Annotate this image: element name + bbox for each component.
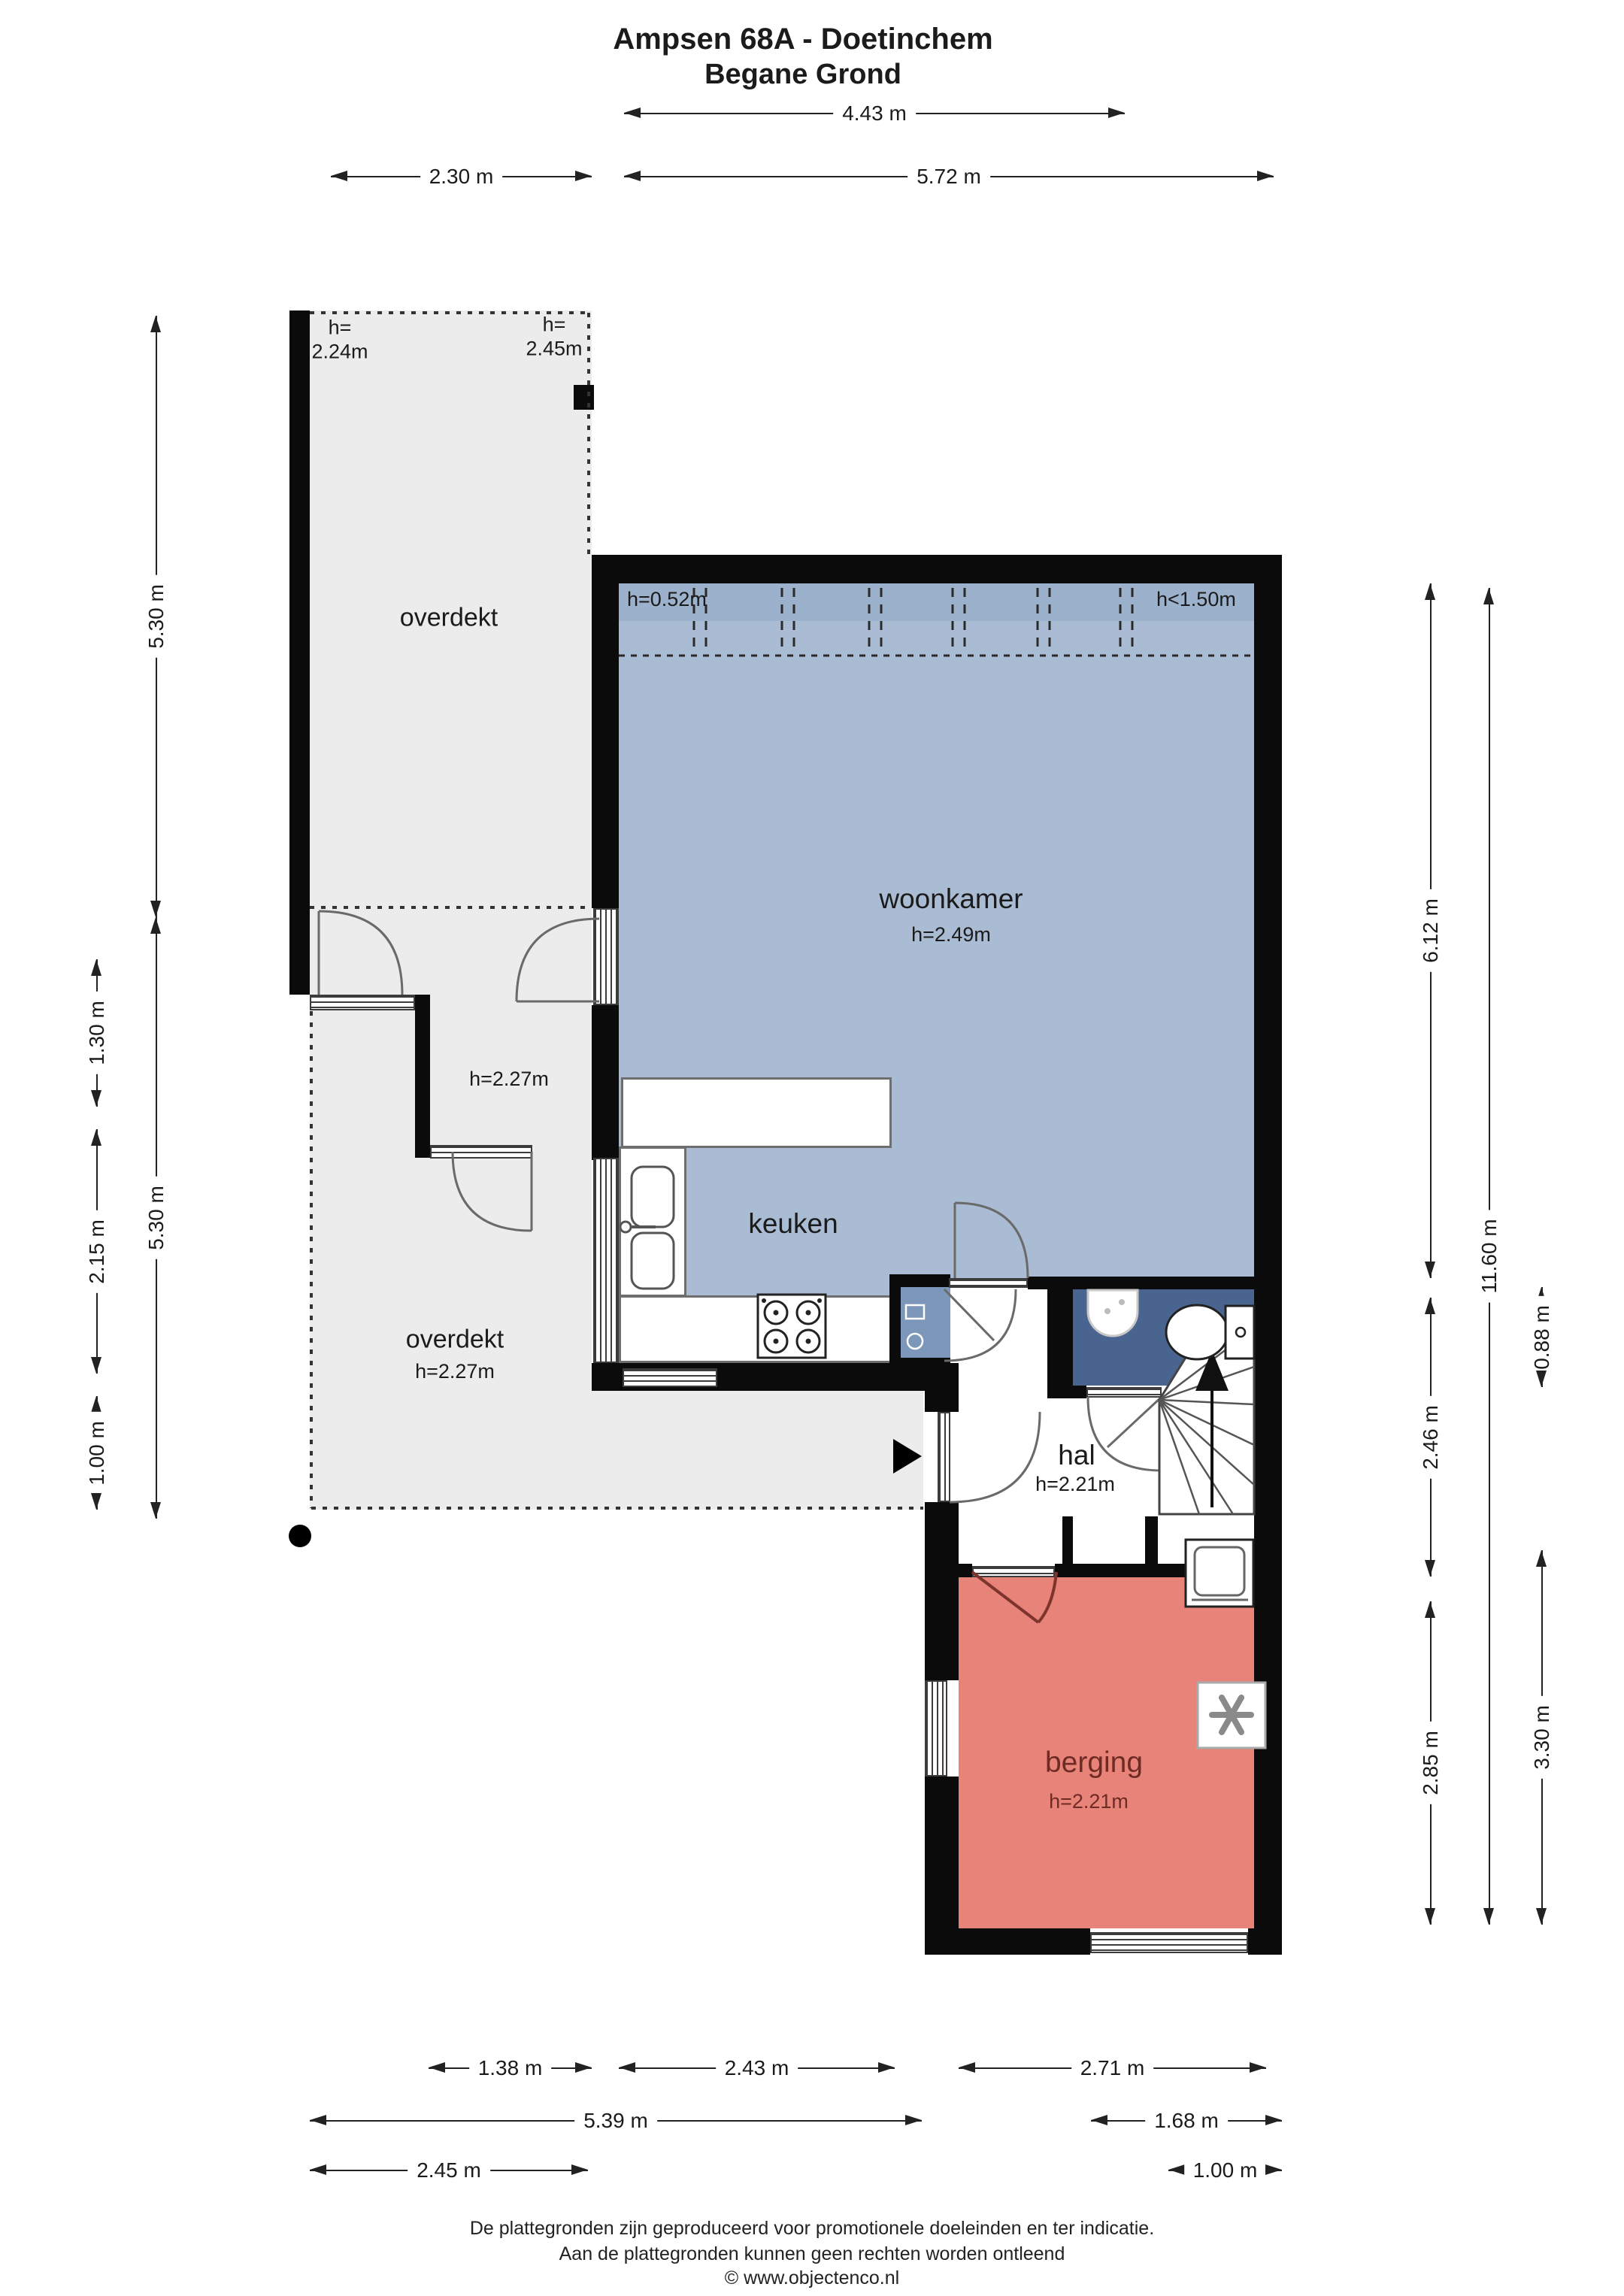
wall — [1248, 1928, 1282, 1955]
dimension: 2.71 m — [959, 2067, 1266, 2069]
room-label-keuken: keuken — [748, 1208, 838, 1240]
kitchen-bottom-counter — [619, 1295, 892, 1363]
room-label-overdekt-top: overdekt — [400, 604, 498, 633]
dimension: 1.30 m — [96, 959, 98, 1107]
dimension: 2.45 m — [310, 2170, 588, 2171]
height-label-woonkamer: h=2.49m — [911, 922, 991, 947]
wall — [925, 1566, 959, 1680]
wall — [415, 995, 430, 1158]
dimension: 1.00 m — [96, 1396, 98, 1510]
dimension: 4.43 m — [624, 113, 1125, 114]
wall — [1047, 1277, 1282, 1289]
footer-copyright: © www.objectenco.nl — [0, 2267, 1624, 2289]
dimension: 3.30 m — [1541, 1550, 1543, 1925]
height-label-overdekt-right: h= 2.45m — [526, 313, 582, 362]
wall — [1028, 1277, 1047, 1289]
dimension: 2.30 m — [331, 176, 592, 177]
wall — [925, 1928, 1090, 1955]
wall — [592, 555, 1282, 583]
overdekt-bottom-area — [592, 1391, 923, 1510]
window — [310, 995, 415, 1010]
dimension: 0.88 m — [1541, 1287, 1543, 1387]
dimension: 5.30 m — [156, 917, 157, 1519]
kitchen-sink-cabinet — [619, 1146, 686, 1297]
dimension: 1.68 m — [1091, 2120, 1282, 2122]
threshold — [972, 1566, 1055, 1577]
dimension: 5.72 m — [624, 176, 1274, 177]
room-label-overdekt-bottom: overdekt — [406, 1325, 504, 1355]
threshold — [1086, 1387, 1162, 1398]
wall — [889, 1358, 950, 1371]
wall — [925, 1391, 959, 1412]
kitchen-island-counter — [621, 1077, 892, 1148]
wall — [574, 385, 594, 410]
height-label-berging: h=2.21m — [1049, 1789, 1129, 1813]
front-door — [938, 1412, 950, 1502]
dimension: 6.12 m — [1430, 583, 1432, 1278]
wall — [889, 1274, 901, 1371]
dimension: 2.43 m — [619, 2067, 895, 2069]
wall — [289, 310, 310, 995]
wall — [925, 1502, 959, 1566]
window — [593, 908, 619, 1005]
room-label-hal: hal — [1058, 1440, 1095, 1471]
dimension: 5.30 m — [156, 316, 157, 917]
wall — [1047, 1277, 1073, 1398]
dimension: 1.00 m — [1168, 2170, 1282, 2171]
wall — [959, 1564, 972, 1577]
wall — [592, 555, 619, 908]
page-title: Ampsen 68A - Doetinchem — [0, 23, 1606, 56]
footer-disclaimer-2: Aan de plattegronden kunnen geen rechten… — [0, 2243, 1624, 2265]
dimension: 11.60 m — [1489, 588, 1490, 1925]
corner-dot-marker — [289, 1525, 311, 1547]
wall — [1145, 1516, 1158, 1569]
wall — [1254, 555, 1282, 1955]
room-label-woonkamer: woonkamer — [879, 883, 1023, 915]
floorplan: Ampsen 68A - Doetinchem Begane Grond — [0, 0, 1624, 2296]
page-subtitle: Begane Grond — [0, 59, 1606, 91]
footer-disclaimer-1: De plattegronden zijn geproduceerd voor … — [0, 2218, 1624, 2240]
meterkast-area — [901, 1287, 950, 1358]
toilet-area — [1073, 1289, 1254, 1386]
dimension: 5.39 m — [310, 2120, 922, 2122]
window — [925, 1680, 947, 1777]
dimension: 2.85 m — [1430, 1601, 1432, 1925]
roof-height-left: h=0.52m — [627, 588, 707, 611]
threshold — [949, 1278, 1028, 1288]
roof-height-right: h<1.50m — [1156, 588, 1236, 611]
height-label-hal: h=2.21m — [1035, 1472, 1115, 1496]
dimension: 2.46 m — [1430, 1298, 1432, 1577]
wall — [592, 1005, 619, 1160]
height-label-overdekt-bottom: h=2.27m — [415, 1359, 495, 1383]
window — [623, 1368, 717, 1387]
window — [593, 1158, 619, 1363]
window — [430, 1145, 532, 1159]
height-label-tussenruimte: h=2.27m — [469, 1067, 549, 1091]
room-label-berging: berging — [1045, 1746, 1143, 1780]
height-label-overdekt-left: h= 2.24m — [311, 316, 368, 365]
window — [1090, 1932, 1248, 1953]
wall — [1047, 1386, 1086, 1398]
wall — [1062, 1516, 1073, 1569]
dimension: 2.15 m — [96, 1129, 98, 1374]
dimension: 1.38 m — [429, 2067, 592, 2069]
